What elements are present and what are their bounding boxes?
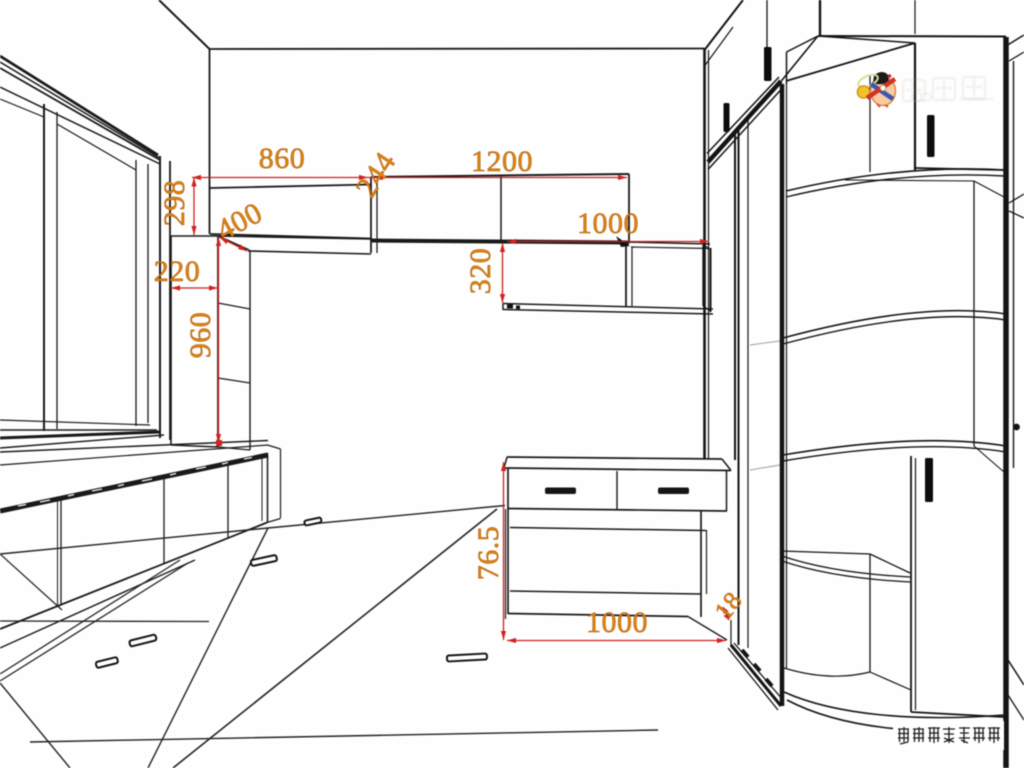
svg-text:220: 220 [154,255,201,288]
svg-text:1000: 1000 [577,207,639,240]
svg-text:1000: 1000 [586,606,648,639]
svg-text:320: 320 [464,248,497,295]
svg-text:1200: 1200 [471,145,533,178]
svg-text:76.5: 76.5 [472,526,505,581]
svg-text:298: 298 [158,180,191,227]
svg-text:860: 860 [259,142,306,175]
svg-text:960: 960 [184,312,217,359]
